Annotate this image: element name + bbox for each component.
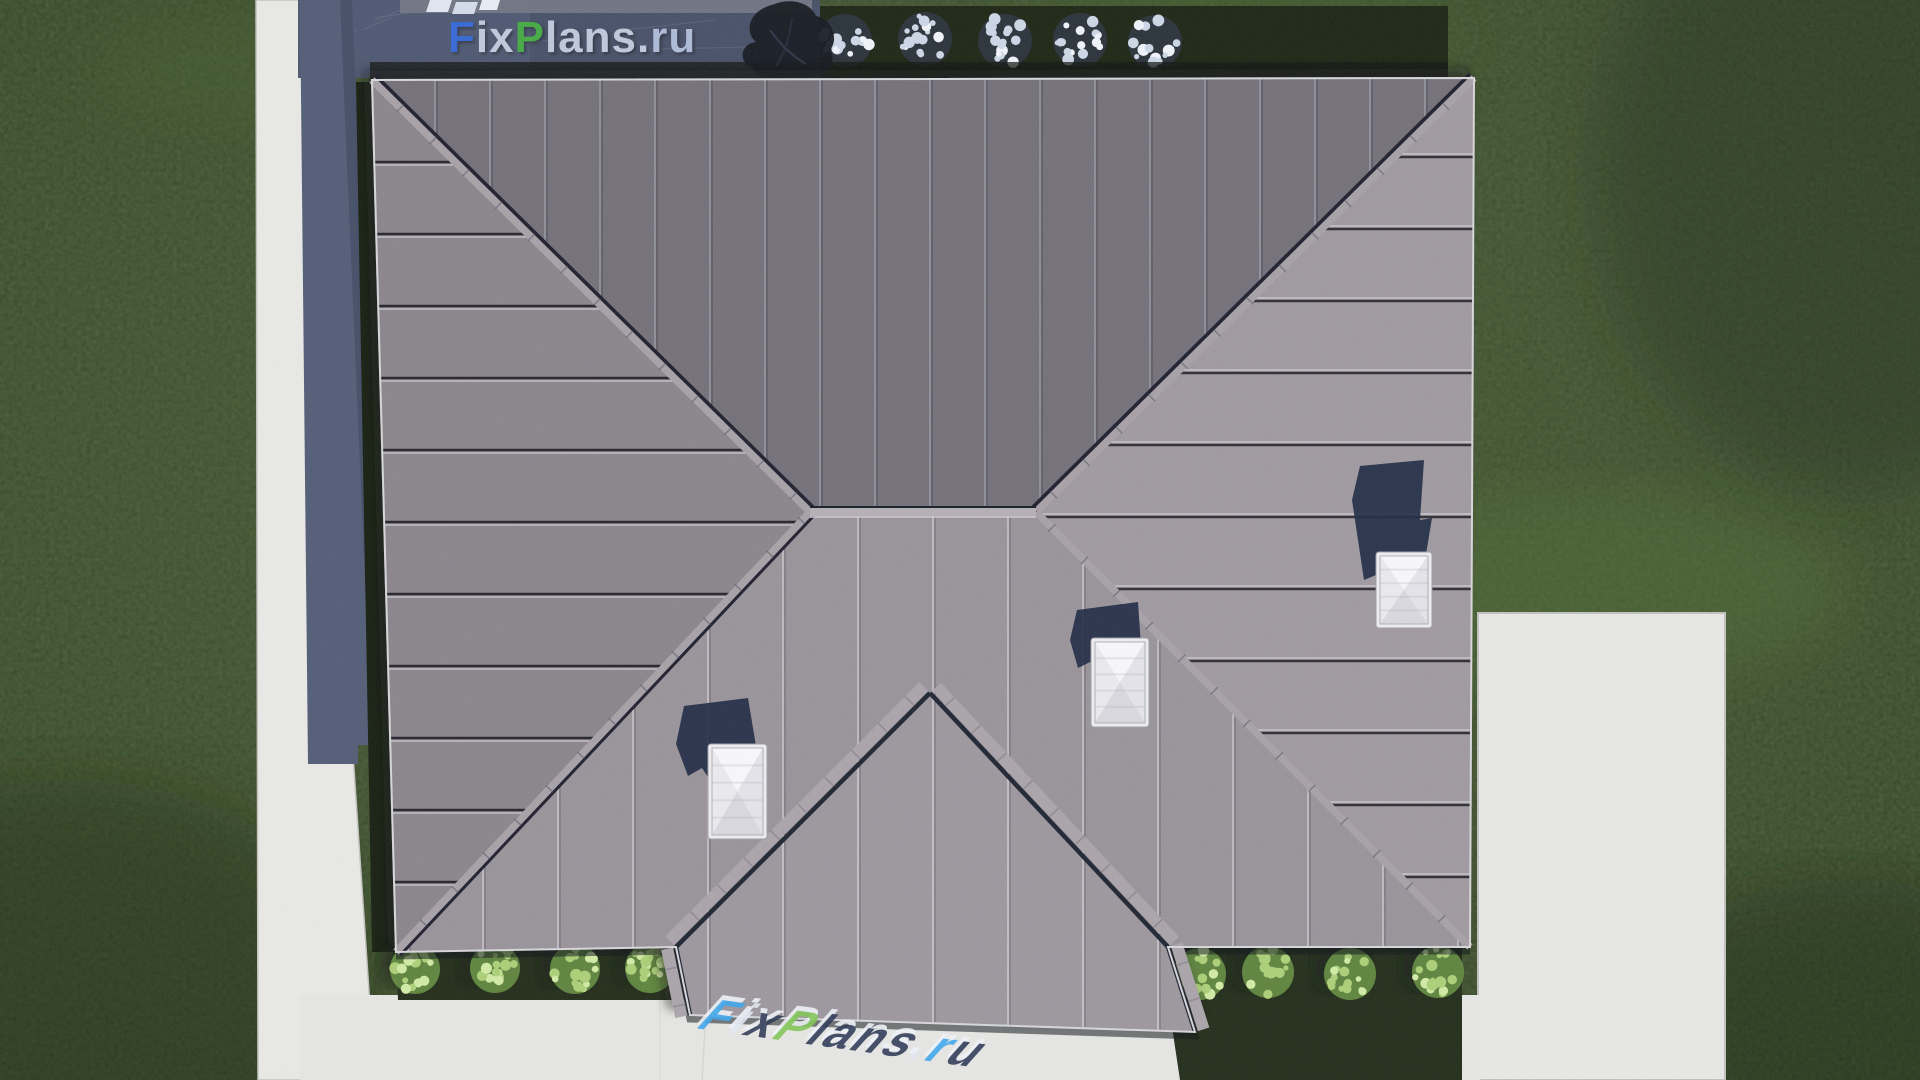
render-canvas: FixPlans.ru FixPlans.ru FixPlans.ru [0, 0, 1920, 1080]
film-grain [0, 0, 1920, 1080]
aerial-roof-render: FixPlans.ru FixPlans.ru FixPlans.ru [0, 0, 1920, 1080]
